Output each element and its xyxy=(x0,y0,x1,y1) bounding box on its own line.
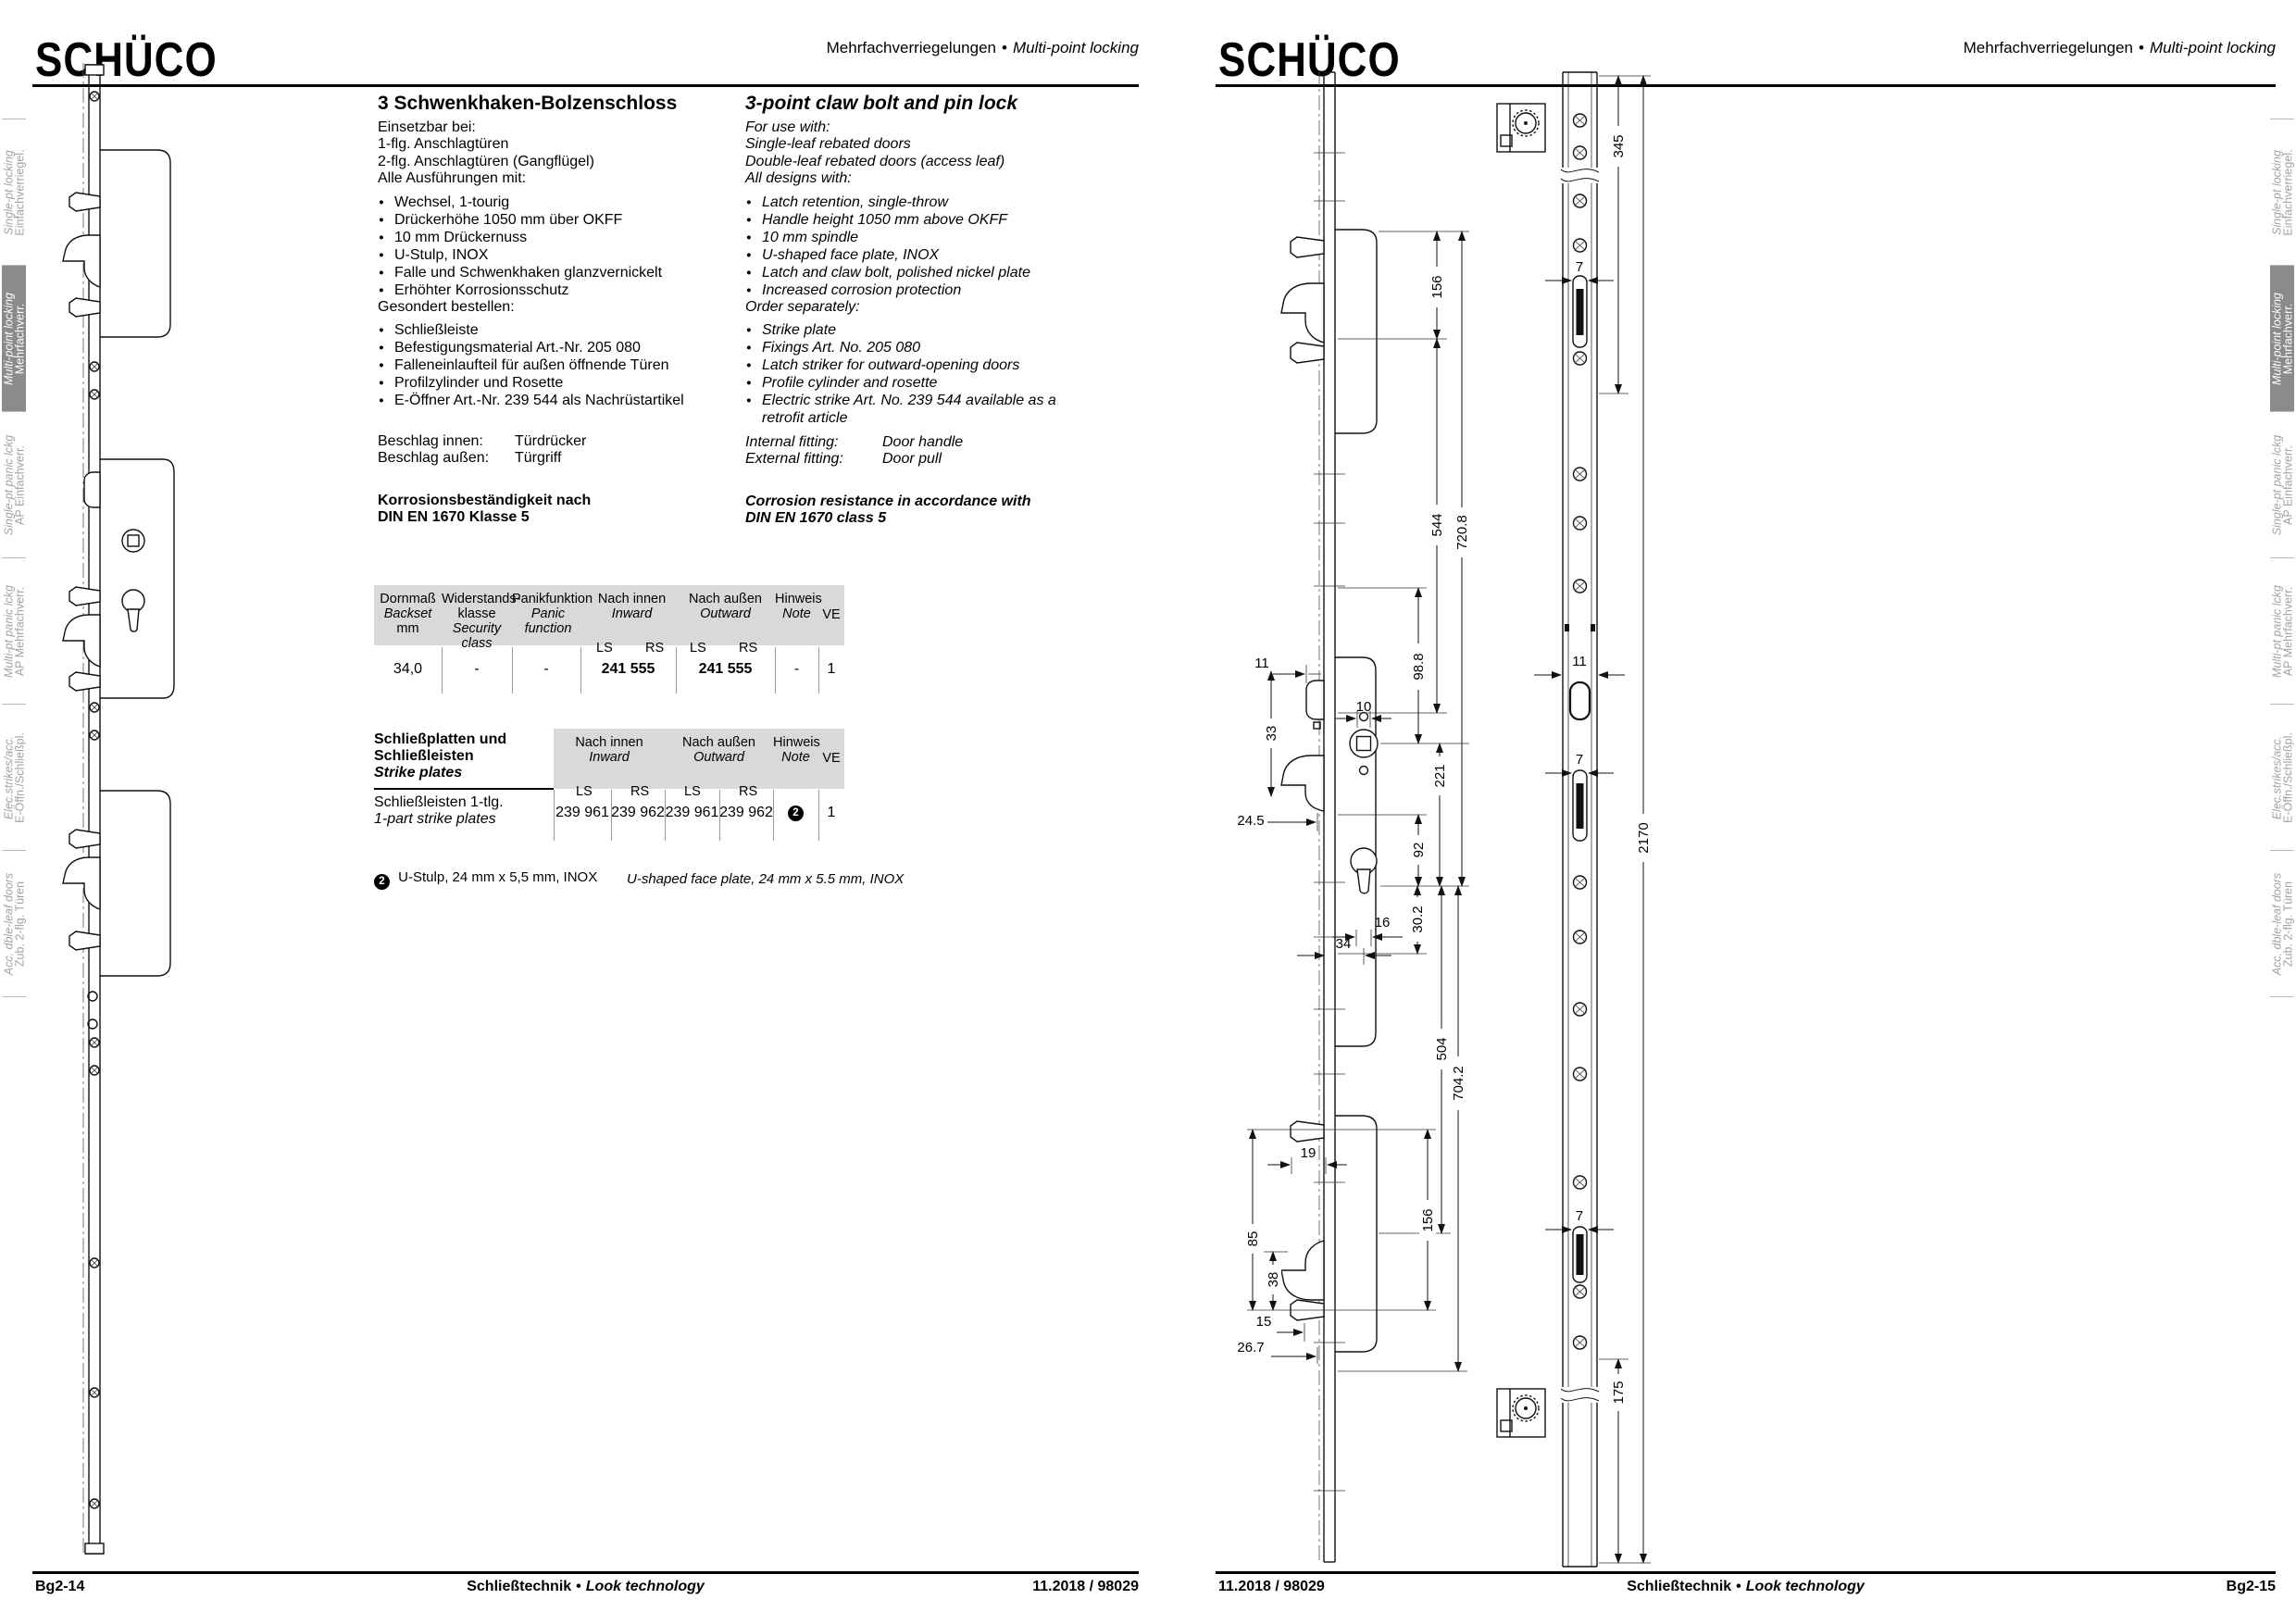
list-item: Latch retention, single-throw xyxy=(745,194,1086,211)
right-tab-strip: Single-pt lockingEinfachverriegel. Multi… xyxy=(2270,119,2294,997)
dim-label: 544 xyxy=(1429,513,1445,536)
fitting-label: Beschlag außen: xyxy=(378,450,515,467)
tab-acc-double-leaf[interactable]: Acc. dble-leaf doorsZub. 2-flg. Türen xyxy=(2270,851,2294,997)
security-value: - xyxy=(442,661,512,678)
catalog-spread: { "header": { "logo": "SCHÜCO", "subtitl… xyxy=(0,0,2296,1624)
tab-single-pt-panic[interactable]: Single-pt panic lckgAP Einfachverr. xyxy=(2,412,26,558)
article-number: 241 555 xyxy=(580,661,676,678)
article-number: 239 961 xyxy=(554,805,611,821)
dim-label: 156 xyxy=(1420,1208,1436,1231)
designs-heading-de: Alle Ausführungen mit: xyxy=(378,170,702,187)
fitting-label: Internal fitting: xyxy=(745,434,882,451)
subtitle-separator: • xyxy=(1002,39,1007,56)
list-item: Handle height 1050 mm above OKFF xyxy=(745,211,1086,229)
list-item: U-Stulp, INOX xyxy=(378,246,702,264)
dim-label: 15 xyxy=(1256,1314,1272,1330)
list-item: Schließleiste xyxy=(378,321,702,339)
corrosion-note-de: Korrosionsbeständigkeit nach DIN EN 1670… xyxy=(378,493,702,527)
list-item: E-Öffner Art.-Nr. 239 544 als Nachrüstar… xyxy=(378,392,702,409)
product-title-de: 3 Schwenkhaken-Bolzenschloss xyxy=(378,93,702,115)
table-title: Schließplatten und Schließleisten Strike… xyxy=(374,731,550,781)
list-item: 10 mm Drückernuss xyxy=(378,229,702,246)
latch-bolt xyxy=(84,472,100,507)
lock-order-table: Dornmaß Backset mm Widerstands- klasse S… xyxy=(374,585,844,694)
locking-pin xyxy=(69,931,100,950)
fitting-value: Door handle xyxy=(882,434,963,450)
dim-label: 7 xyxy=(1576,752,1583,768)
footnote: 2 U-Stulp, 24 mm x 5,5 mm, INOX U-shaped… xyxy=(374,869,1022,890)
fitting-value: Door pull xyxy=(882,451,942,467)
main-lock-case xyxy=(100,459,174,698)
footnote-badge: 2 xyxy=(374,874,390,890)
tab-label-de: Mehrfachverr. xyxy=(2282,266,2294,411)
intro-line: Single-leaf rebated doors xyxy=(745,136,1086,153)
strike-plate-table: Schließplatten und Schließleisten Strike… xyxy=(374,729,844,844)
col-inward: Nach innen Inward LSRS xyxy=(554,729,665,789)
dim-label: 7 xyxy=(1576,259,1583,275)
claw-hook xyxy=(1281,283,1324,343)
tab-label-de: Mehrfachverr. xyxy=(14,266,26,411)
tab-label-de: E-Öffn./Schließpl. xyxy=(2282,705,2294,850)
note-badge: 2 xyxy=(788,806,804,821)
article-number: 241 555 xyxy=(676,661,775,678)
dim-label: 16 xyxy=(1375,915,1391,931)
tab-label-en: Acc. dble-leaf doors xyxy=(2271,851,2283,996)
col-panic-function: Panikfunktion Panic function xyxy=(512,585,584,636)
intro-line: For use with: xyxy=(745,119,1086,136)
fittings-de: Beschlag innen:Türdrücker Beschlag außen… xyxy=(378,433,702,468)
order-list-en: Strike plate Fixings Art. No. 205 080 La… xyxy=(745,321,1086,427)
fitting-value: Türgriff xyxy=(515,450,561,466)
tab-label-de: Einfachverriegel. xyxy=(2282,119,2294,265)
ve-value: 1 xyxy=(818,661,844,678)
locking-pin xyxy=(1291,237,1324,257)
fitting-label: Beschlag innen: xyxy=(378,433,515,450)
top-gear-case xyxy=(1335,230,1377,433)
tab-label-en: Acc. dble-leaf doors xyxy=(3,851,15,996)
claw-hook xyxy=(1281,756,1324,811)
list-item: Falle und Schwenkhaken glanzvernickelt xyxy=(378,264,702,281)
dim-label: 7 xyxy=(1576,1208,1583,1224)
row-label: Schließleisten 1-tlg. 1-part strike plat… xyxy=(374,794,504,828)
locking-pin xyxy=(1291,1121,1324,1142)
list-item: Profile cylinder and rosette xyxy=(745,374,1086,392)
table-header: Nach innen Inward LSRS Nach außen Outwar… xyxy=(554,729,844,789)
dim-label: 11 xyxy=(1254,656,1269,671)
page-subtitle: Mehrfachverriegelungen•Multi-point locki… xyxy=(32,39,1139,57)
dim-label: 38 xyxy=(1266,1272,1281,1288)
left-tab-strip: Single-pt lockingEinfachverriegel. Multi… xyxy=(2,119,26,997)
subtitle-separator: • xyxy=(2139,39,2144,56)
footer-rule xyxy=(1216,1571,2276,1574)
article-number: 239 962 xyxy=(611,805,665,821)
face-plate-dimensions: 345 2170 175 7 11 7 7 xyxy=(1534,76,1652,1563)
list-item: Falleneinlaufteil für außen öffnende Tür… xyxy=(378,356,702,374)
note-badge-cell: 2 xyxy=(773,804,818,821)
order-heading-en: Order separately: xyxy=(745,299,1086,316)
col-ve: VE xyxy=(818,585,844,622)
dim-label: 156 xyxy=(1429,275,1445,298)
claw-hook xyxy=(63,235,100,287)
claw-hook xyxy=(63,615,100,667)
tab-label-de: Zub. 2-flg. Türen xyxy=(14,851,26,996)
dim-label: 92 xyxy=(1411,843,1427,858)
spindle-hub xyxy=(122,530,144,552)
dim-label: 11 xyxy=(1572,654,1587,669)
intro-line: 2-flg. Anschlagtüren (Gangflügel) xyxy=(378,154,702,170)
dim-label: 2170 xyxy=(1636,822,1652,853)
german-column: 3 Schwenkhaken-Bolzenschloss Einsetzbar … xyxy=(378,93,702,527)
list-item: Befestigungsmaterial Art.-Nr. 205 080 xyxy=(378,339,702,356)
gear-detail-box xyxy=(1497,1389,1545,1437)
dim-label: 221 xyxy=(1432,764,1448,787)
note-value: - xyxy=(775,661,818,678)
tab-multi-point-locking[interactable]: Multi-point lockingMehrfachverr. xyxy=(2,266,26,412)
tab-multi-point-locking[interactable]: Multi-point lockingMehrfachverr. xyxy=(2270,266,2294,412)
fitting-value: Türdrücker xyxy=(515,433,586,449)
list-item: Strike plate xyxy=(745,321,1086,339)
tab-label-de: E-Öffn./Schließpl. xyxy=(14,705,26,850)
ve-value: 1 xyxy=(818,805,844,821)
fitting-label: External fitting: xyxy=(745,451,882,468)
dim-label: 85 xyxy=(1245,1231,1261,1247)
tab-label-de: AP Mehrfachverr. xyxy=(14,558,26,704)
locking-pin xyxy=(69,672,100,691)
lock-assembly-drawing xyxy=(39,59,219,1559)
locking-pin xyxy=(69,193,100,211)
dim-label: 504 xyxy=(1434,1037,1450,1060)
tab-label-en: Elec.strikes/acc. xyxy=(2271,705,2283,850)
tab-label-en: Multi-pt panic lckg xyxy=(2271,558,2283,704)
col-backset: Dornmaß Backset mm xyxy=(374,585,442,636)
tab-electric-strikes[interactable]: Elec.strikes/acc.E-Öffn./Schließpl. xyxy=(2270,705,2294,851)
col-note: Hinweis Note xyxy=(773,729,818,765)
col-note: Hinweis Note xyxy=(775,585,818,621)
dim-label: 26.7 xyxy=(1237,1340,1264,1355)
subtitle-en: Multi-point locking xyxy=(1013,39,1139,56)
claw-hook xyxy=(63,857,100,909)
list-item: Erhöhter Korrosionsschutz xyxy=(378,281,702,299)
backset-value: 34,0 xyxy=(374,661,442,678)
list-item: Latch and claw bolt, polished nickel pla… xyxy=(745,264,1086,281)
tab-label-en: Multi-point locking xyxy=(2271,266,2283,411)
subtitle-de: Mehrfachverriegelungen xyxy=(827,39,996,56)
tab-label-en: Single-pt locking xyxy=(2271,119,2283,265)
col-security-class: Widerstands- klasse Security class xyxy=(442,585,512,651)
order-list-de: Schließleiste Befestigungsmaterial Art.-… xyxy=(378,321,702,409)
list-item: Latch striker for outward-opening doors xyxy=(745,356,1086,374)
tab-label-de: Zub. 2-flg. Türen xyxy=(2282,851,2294,996)
table-body-row: 34,0 - - 241 555 241 555 - 1 xyxy=(374,645,844,694)
gear-detail-box xyxy=(1497,104,1545,152)
tab-label-de: Einfachverriegel. xyxy=(14,119,26,265)
tab-multi-pt-panic[interactable]: Multi-pt panic lckgAP Mehrfachverr. xyxy=(2270,558,2294,705)
dim-label: 10 xyxy=(1356,699,1372,715)
list-item: Profilzylinder und Rosette xyxy=(378,374,702,392)
page-number: Bg2-15 xyxy=(1216,1579,2276,1595)
dim-label: 98.8 xyxy=(1411,653,1427,680)
latch-bolt xyxy=(1306,681,1324,719)
bottom-gear-case xyxy=(1335,1116,1377,1352)
tab-label-en: Single-pt panic lckg xyxy=(3,412,15,557)
list-item: Wechsel, 1-tourig xyxy=(378,194,702,211)
corrosion-note-en: Corrosion resistance in accordance with … xyxy=(745,493,1086,528)
dim-label: 175 xyxy=(1611,1380,1627,1404)
dim-label: 30.2 xyxy=(1410,906,1426,932)
tab-single-pt-locking[interactable]: Single-pt lockingEinfachverriegel. xyxy=(2,119,26,266)
col-inward: Nach innen Inward LSRS xyxy=(584,585,680,645)
dimension-lines: 156 544 720.8 98.8 33 221 92 30.2 504 70… xyxy=(1244,231,1470,1371)
list-item: Drückerhöhe 1050 mm über OKFF xyxy=(378,211,702,229)
tab-single-pt-locking[interactable]: Single-pt lockingEinfachverriegel. xyxy=(2270,119,2294,266)
tab-label-en: Multi-point locking xyxy=(3,266,15,411)
tab-label-de: AP Einfachverr. xyxy=(2282,412,2294,557)
dim-label: 34 xyxy=(1336,936,1352,952)
edition-code: 11.2018 / 98029 xyxy=(32,1579,1139,1595)
article-number: 239 962 xyxy=(719,805,773,821)
footer-rule xyxy=(32,1571,1139,1574)
table-body-row: Schließleisten 1-tlg. 1-part strike plat… xyxy=(374,790,844,843)
top-lock-case xyxy=(100,150,170,337)
panic-value: - xyxy=(512,661,580,678)
dim-label: 720.8 xyxy=(1454,515,1470,550)
tab-label-en: Single-pt panic lckg xyxy=(2271,412,2283,557)
dim-label: 704.2 xyxy=(1451,1066,1466,1101)
list-item: 10 mm spindle xyxy=(745,229,1086,246)
dim-label: 33 xyxy=(1264,726,1279,742)
table-header: Dornmaß Backset mm Widerstands- klasse S… xyxy=(374,585,844,645)
footnote-en: U-shaped face plate, 24 mm x 5.5 mm, INO… xyxy=(627,871,904,887)
locking-pin xyxy=(69,830,100,848)
multipoint-lock-dimension-drawing: 156 544 720.8 98.8 33 221 92 30.2 504 70… xyxy=(1236,65,1653,1569)
dim-label: 19 xyxy=(1301,1145,1316,1161)
designs-list-en: Latch retention, single-throw Handle hei… xyxy=(745,194,1086,299)
tab-label-de: AP Einfachverr. xyxy=(14,412,26,557)
product-title-en: 3-point claw bolt and pin lock xyxy=(745,93,1086,115)
page-subtitle: Mehrfachverriegelungen•Multi-point locki… xyxy=(1216,39,2276,57)
face-plate-front-view xyxy=(1561,72,1599,1567)
tab-acc-double-leaf[interactable]: Acc. dble-leaf doorsZub. 2-flg. Türen xyxy=(2,851,26,997)
subtitle-de: Mehrfachverriegelungen xyxy=(1964,39,2133,56)
tab-label-de: AP Mehrfachverr. xyxy=(2282,558,2294,704)
tab-multi-pt-panic[interactable]: Multi-pt panic lckgAP Mehrfachverr. xyxy=(2,558,26,705)
article-number: 239 961 xyxy=(665,805,719,821)
col-ve: VE xyxy=(818,729,844,766)
list-item: Increased corrosion protection xyxy=(745,281,1086,299)
locking-pin xyxy=(69,587,100,606)
designs-heading-en: All designs with: xyxy=(745,170,1086,187)
list-item: Fixings Art. No. 205 080 xyxy=(745,339,1086,356)
locking-pin xyxy=(69,298,100,317)
fittings-en: Internal fitting:Door handle External fi… xyxy=(745,434,1086,468)
order-heading-de: Gesondert bestellen: xyxy=(378,299,702,316)
dim-label: 345 xyxy=(1611,134,1627,157)
locking-pin xyxy=(1291,343,1324,363)
latch-opening xyxy=(1570,682,1590,719)
dim-label: 24.5 xyxy=(1237,813,1264,829)
subtitle-en: Multi-point locking xyxy=(2150,39,2276,56)
list-item: Electric strike Art. No. 239 544 availab… xyxy=(745,392,1067,427)
tab-single-pt-panic[interactable]: Single-pt panic lckgAP Einfachverr. xyxy=(2270,412,2294,558)
tab-electric-strikes[interactable]: Elec.strikes/acc.E-Öffn./Schließpl. xyxy=(2,705,26,851)
tab-label-en: Multi-pt panic lckg xyxy=(3,558,15,704)
col-outward: Nach außen Outward LSRS xyxy=(665,729,773,789)
designs-list-de: Wechsel, 1-tourig Drückerhöhe 1050 mm üb… xyxy=(378,194,702,299)
lock-side-view xyxy=(1281,70,1378,1564)
list-item: U-shaped face plate, INOX xyxy=(745,246,1086,264)
intro-line: Double-leaf rebated doors (access leaf) xyxy=(745,154,1086,170)
bottom-lock-case xyxy=(100,791,170,976)
intro-line: 1-flg. Anschlagtüren xyxy=(378,136,702,153)
tab-label-en: Elec.strikes/acc. xyxy=(3,705,15,850)
col-outward: Nach außen Outward LSRS xyxy=(676,585,775,645)
claw-hook xyxy=(1281,1241,1324,1300)
footnote-de: U-Stulp, 24 mm x 5,5 mm, INOX xyxy=(398,869,597,885)
spindle-hub xyxy=(1350,730,1378,757)
intro-line: Einsetzbar bei: xyxy=(378,119,702,136)
english-column: 3-point claw bolt and pin lock For use w… xyxy=(745,93,1086,528)
tab-label-en: Single-pt locking xyxy=(3,119,15,265)
